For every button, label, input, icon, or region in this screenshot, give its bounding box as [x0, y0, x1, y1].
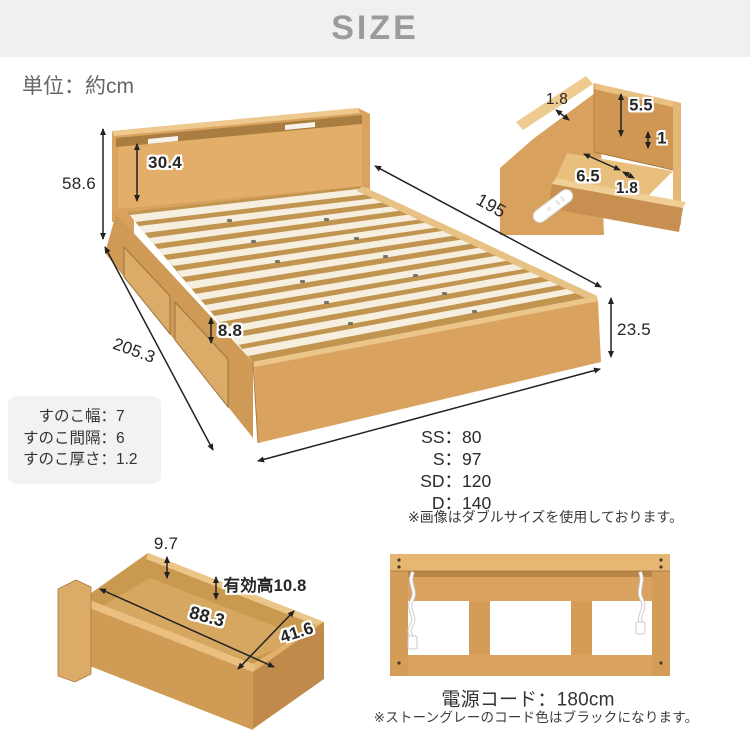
size-row: SD：120 [396, 470, 491, 492]
rear-bottom-rail [390, 655, 670, 676]
rear-right-stile [652, 571, 670, 676]
size-width-list: SS：80 S：97 SD：120 D：140 [396, 426, 491, 514]
rear-left-stile [390, 571, 408, 676]
dim-side-rail-height: 8.8 [218, 321, 242, 341]
size-value: 120 [462, 470, 491, 492]
rear-top-board [390, 554, 670, 571]
dim-shelf-inner-height: 5.5 [629, 97, 653, 116]
size-infographic: SIZE [0, 0, 750, 750]
size-label: S： [396, 448, 462, 470]
dim-shelf-back-thickness: 1.8 [546, 91, 568, 109]
rear-mid-stile [469, 601, 490, 655]
dim-shelf-ledge: 1 [657, 130, 666, 149]
dim-shelf-front-thickness: 1.8 [616, 180, 638, 198]
dim-drawer-side-height: 9.7 [154, 534, 178, 554]
size-row: S：97 [396, 448, 491, 470]
slat-info-label: すのこ幅： [8, 406, 116, 428]
power-cord-note: ※ストーングレーのコード色はブラックになります。 [374, 706, 699, 726]
slat-info-value: 6 [116, 428, 125, 450]
dim-headboard-panel-height: 30.4 [148, 153, 182, 173]
slat-info-box: すのこ幅：7 すのこ間隔：6 すのこ厚さ：1.2 [8, 396, 161, 484]
size-label: SS： [396, 426, 462, 448]
slat-info-row: すのこ幅：7 [8, 406, 161, 428]
unit-note: 単位：約cm [22, 70, 134, 100]
slat-info-row: すのこ間隔：6 [8, 428, 161, 450]
slat-info-row: すのこ厚さ：1.2 [8, 449, 161, 471]
slat-info-value: 7 [116, 406, 125, 428]
size-value: 97 [462, 448, 481, 470]
size-label: SD： [396, 470, 462, 492]
slat-info-label: すのこ間隔： [8, 428, 116, 450]
dim-shelf-depth: 6.5 [576, 168, 600, 187]
size-value: 80 [462, 426, 481, 448]
dim-drawer-effective-height: 有効高10.8 [223, 572, 306, 596]
headboard-rear-illustration [390, 554, 670, 676]
drawer-front-panel [58, 580, 91, 682]
dim-base-height: 23.5 [617, 320, 651, 340]
dim-headboard-total-height: 58.6 [62, 174, 96, 194]
rear-mid-stile [571, 601, 592, 655]
size-note: ※画像はダブルサイズを使用しております。 [408, 507, 683, 527]
slat-info-label: すのこ厚さ： [8, 449, 116, 471]
shelf-detail-illustration [500, 76, 686, 235]
slat-info-value: 1.2 [116, 449, 138, 471]
size-row: SS：80 [396, 426, 491, 448]
